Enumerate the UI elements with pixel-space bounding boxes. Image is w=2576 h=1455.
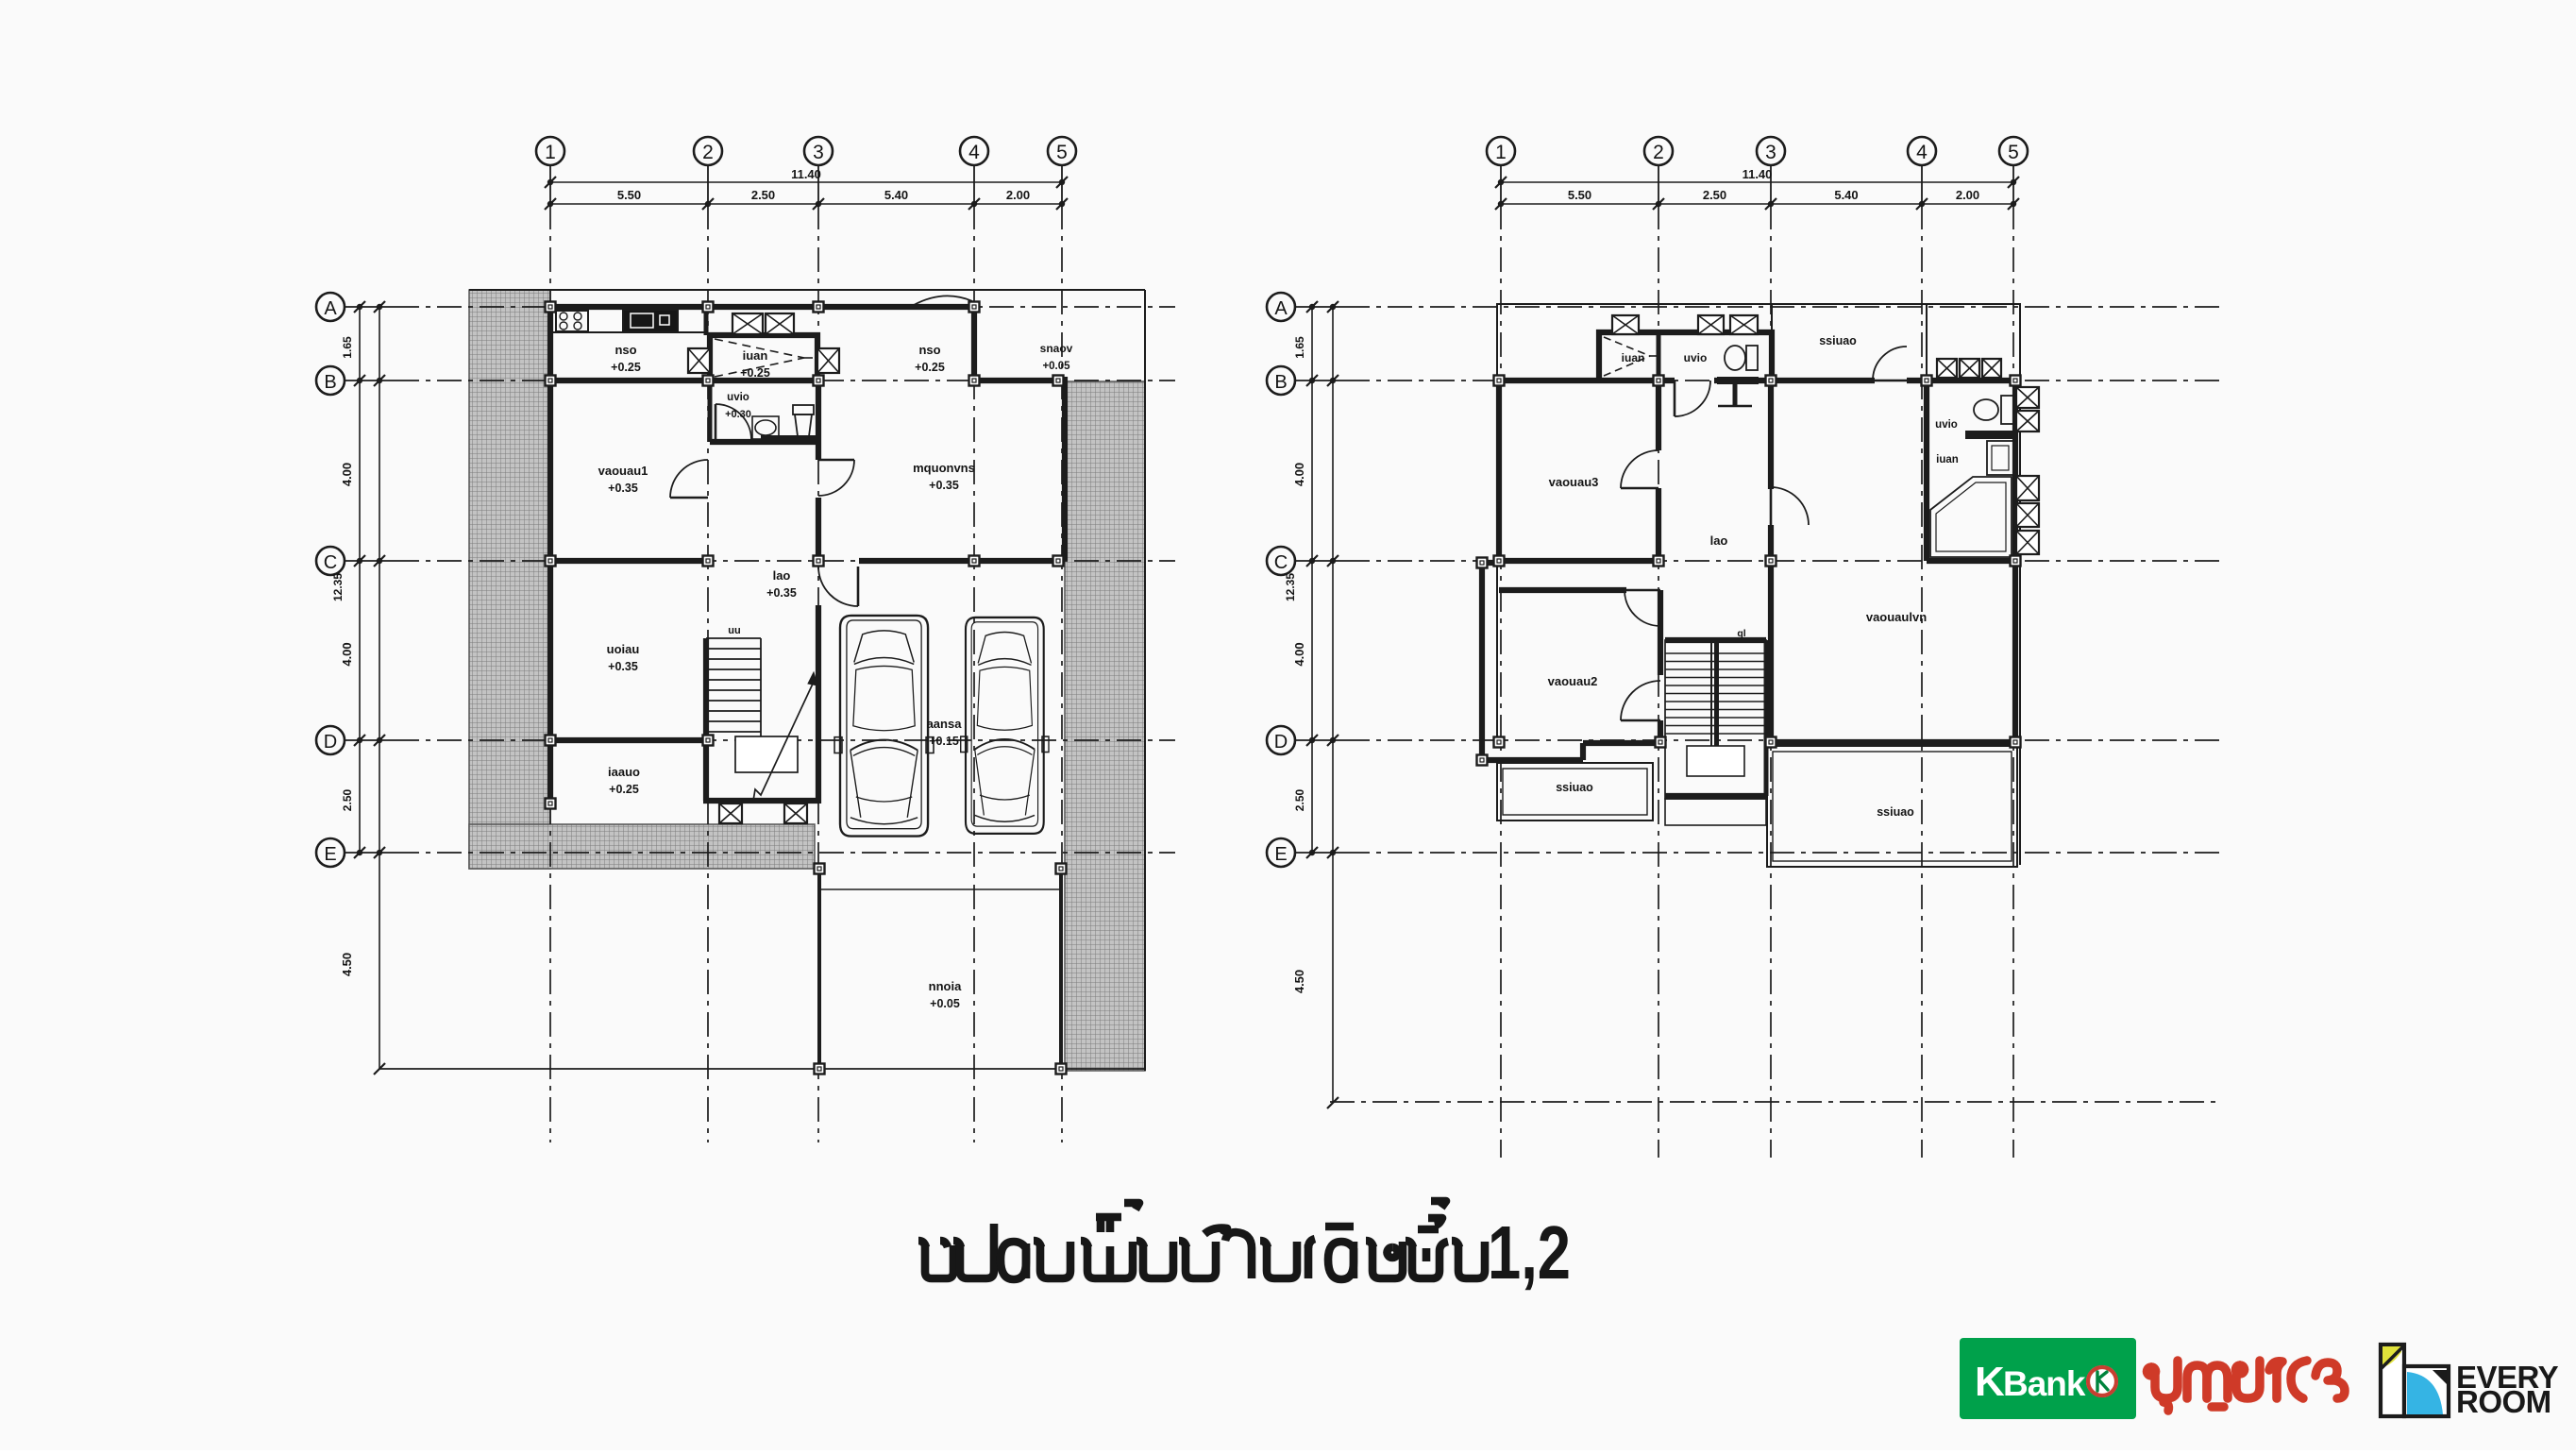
- svg-text:+0.35: +0.35: [929, 479, 959, 492]
- svg-text:iaauo: iaauo: [608, 765, 640, 779]
- svg-text:1.65: 1.65: [1293, 336, 1306, 359]
- svg-text:+0.35: +0.35: [766, 586, 797, 600]
- svg-text:iuan: iuan: [743, 348, 768, 363]
- svg-text:12.35: 12.35: [1284, 573, 1297, 601]
- svg-text:B: B: [324, 372, 336, 393]
- svg-text:2.50: 2.50: [341, 788, 354, 811]
- svg-text:5.40: 5.40: [884, 188, 908, 202]
- svg-text:C: C: [324, 552, 337, 573]
- svg-text:4.00: 4.00: [1292, 642, 1306, 666]
- svg-text:5: 5: [1056, 142, 1068, 163]
- svg-text:3: 3: [1765, 142, 1776, 163]
- svg-text:+0.25: +0.25: [611, 361, 641, 374]
- svg-text:lao: lao: [773, 568, 791, 583]
- svg-text:A: A: [324, 298, 337, 319]
- svg-text:vaouau1: vaouau1: [598, 464, 648, 478]
- svg-text:ql: ql: [1737, 628, 1745, 639]
- svg-text:4.50: 4.50: [1292, 970, 1306, 993]
- svg-text:+0.30: +0.30: [725, 409, 751, 420]
- svg-text:nso: nso: [918, 343, 940, 357]
- svg-text:C: C: [1274, 552, 1288, 573]
- svg-text:ssiuao: ssiuao: [1819, 334, 1857, 347]
- svg-text:+0.25: +0.25: [915, 361, 945, 374]
- svg-text:ssiuao: ssiuao: [1877, 805, 1914, 819]
- svg-text:lao: lao: [1710, 533, 1728, 548]
- svg-text:1,2: 1,2: [1488, 1210, 1571, 1294]
- svg-text:2.00: 2.00: [1956, 188, 1979, 202]
- svg-text:2: 2: [1653, 142, 1664, 163]
- svg-text:nnoia: nnoia: [929, 979, 962, 993]
- svg-text:aansa: aansa: [927, 717, 963, 731]
- svg-text:uvio: uvio: [1935, 419, 1958, 431]
- svg-text:E: E: [324, 844, 336, 865]
- svg-text:uvio: uvio: [1684, 351, 1708, 364]
- svg-text:nso: nso: [615, 343, 636, 357]
- svg-text:11.40: 11.40: [1743, 167, 1773, 181]
- svg-text:iuan: iuan: [1622, 351, 1645, 364]
- svg-text:4: 4: [1916, 142, 1928, 163]
- svg-text:D: D: [1274, 732, 1288, 753]
- svg-text:vaouaulvn: vaouaulvn: [1866, 610, 1927, 624]
- svg-text:2.50: 2.50: [1293, 788, 1306, 811]
- svg-text:4.00: 4.00: [340, 642, 354, 666]
- svg-text:mquonvns: mquonvns: [913, 461, 975, 475]
- svg-text:+0.35: +0.35: [608, 660, 638, 673]
- svg-text:1: 1: [545, 142, 556, 163]
- svg-text:5: 5: [2008, 142, 2019, 163]
- svg-text:uoiau: uoiau: [607, 642, 640, 656]
- svg-text:2.00: 2.00: [1006, 188, 1030, 202]
- svg-text:ROOM: ROOM: [2456, 1384, 2551, 1419]
- svg-text:uu: uu: [728, 625, 740, 636]
- svg-text:A: A: [1274, 298, 1288, 319]
- svg-text:12.35: 12.35: [331, 573, 345, 601]
- svg-text:uvio: uvio: [727, 392, 749, 403]
- svg-text:iuan: iuan: [1936, 454, 1959, 465]
- svg-text:4.50: 4.50: [340, 953, 354, 976]
- svg-text:ssiuao: ssiuao: [1556, 781, 1593, 794]
- svg-text:4: 4: [968, 142, 980, 163]
- svg-text:5.50: 5.50: [617, 188, 641, 202]
- svg-text:+0.05: +0.05: [930, 997, 960, 1010]
- svg-text:+0.15: +0.15: [929, 735, 959, 748]
- svg-text:+0.25: +0.25: [609, 783, 639, 796]
- svg-text:4.00: 4.00: [340, 463, 354, 486]
- svg-text:2.50: 2.50: [1703, 188, 1726, 202]
- svg-text:Bank: Bank: [2003, 1364, 2086, 1403]
- svg-text:1.65: 1.65: [341, 336, 354, 359]
- svg-text:+0.25: +0.25: [740, 366, 770, 380]
- svg-text:vaouau3: vaouau3: [1549, 475, 1599, 489]
- svg-text:E: E: [1274, 844, 1287, 865]
- svg-text:+0.35: +0.35: [608, 482, 638, 495]
- svg-text:K: K: [1975, 1359, 2005, 1405]
- svg-text:5.50: 5.50: [1568, 188, 1591, 202]
- svg-text:11.40: 11.40: [791, 167, 821, 181]
- svg-text:5.40: 5.40: [1834, 188, 1858, 202]
- svg-text:+0.05: +0.05: [1042, 361, 1070, 372]
- svg-text:B: B: [1274, 372, 1287, 393]
- svg-text:1: 1: [1495, 142, 1507, 163]
- svg-text:vaouau2: vaouau2: [1548, 674, 1598, 688]
- svg-text:3: 3: [813, 142, 824, 163]
- svg-text:D: D: [324, 732, 337, 753]
- svg-text:2: 2: [702, 142, 714, 163]
- svg-text:4.00: 4.00: [1292, 463, 1306, 486]
- svg-text:2.50: 2.50: [751, 188, 775, 202]
- svg-text:snaov: snaov: [1040, 342, 1073, 355]
